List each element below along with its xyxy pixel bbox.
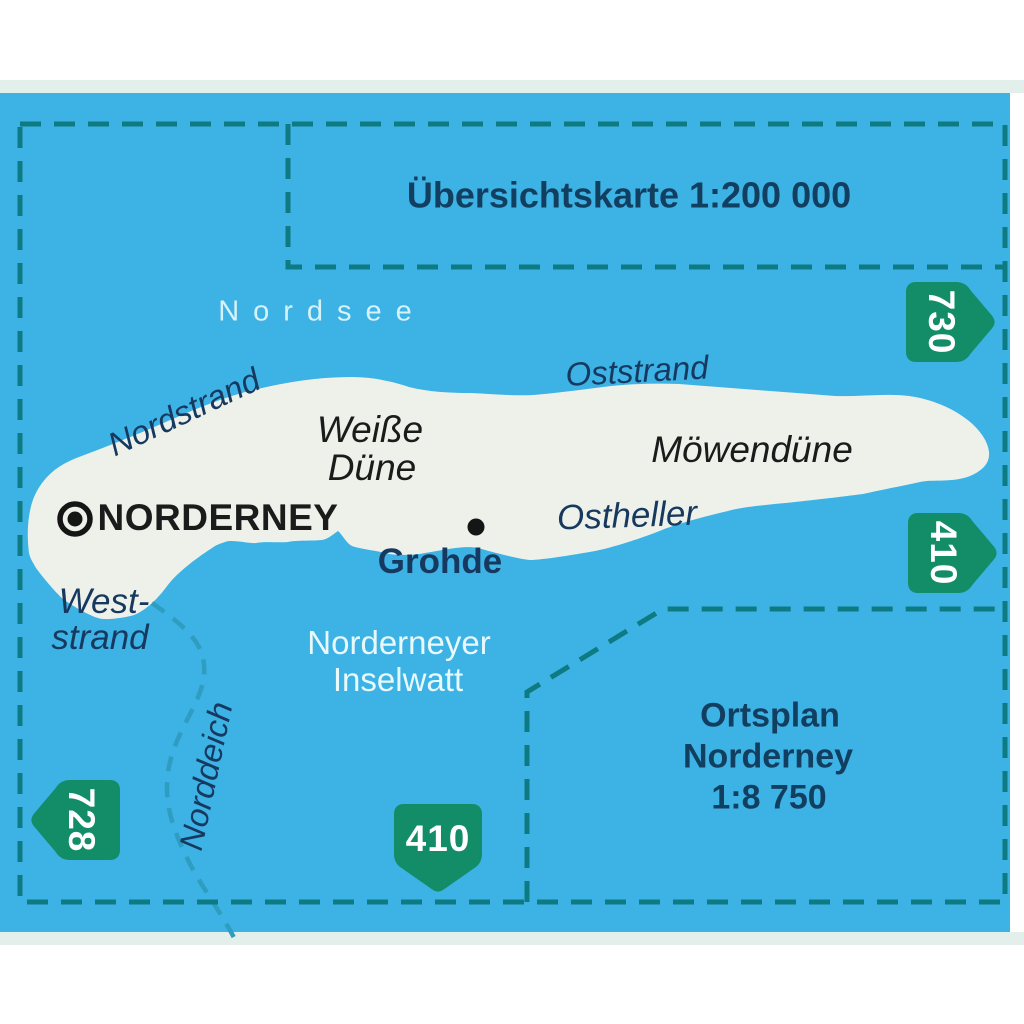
ortsplan-title-line1: Ortsplan	[700, 697, 840, 736]
overview-map-title: Übersichtskarte 1:200 000	[407, 177, 851, 216]
label-oststrand: Oststrand	[565, 349, 710, 392]
label-norderney-town: NORDERNEY	[98, 498, 339, 538]
label-inselwatt-line1: Norderneyer	[307, 625, 490, 661]
label-weststrand-line1: West-	[59, 583, 150, 621]
label-inselwatt-line2: Inselwatt	[333, 662, 463, 698]
label-moewenduene: Möwendüne	[651, 430, 853, 470]
sea-label-nordsee: Nordsee	[218, 296, 426, 327]
ortsplan-title-line3: 1:8 750	[711, 779, 826, 818]
grohde-place-dot-icon	[468, 519, 485, 536]
label-weisse-duene-line1: Weiße	[317, 410, 423, 450]
route-badge-410-right-number: 410	[922, 521, 964, 586]
label-weststrand-line2: strand	[51, 619, 148, 657]
map-page: Übersichtskarte 1:200 000 Nordsee Nordst…	[0, 0, 1024, 1024]
label-ostheller: Ostheller	[556, 495, 697, 538]
route-badge-728-number: 728	[60, 788, 102, 853]
label-grohde: Grohde	[378, 543, 502, 581]
route-badge-730-number: 730	[920, 290, 962, 355]
route-badge-410-bottom-number: 410	[406, 818, 471, 860]
label-weisse-duene-line2: Düne	[328, 448, 416, 488]
ortsplan-title-line2: Norderney	[683, 738, 853, 777]
